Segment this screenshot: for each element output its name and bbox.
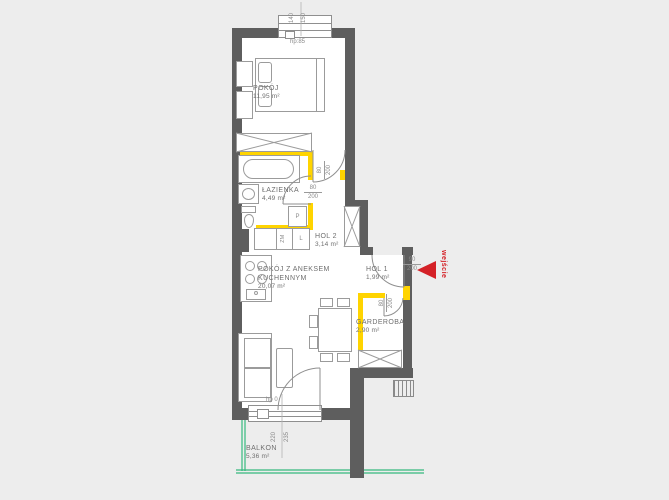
- dim-window-height: 150: [301, 9, 309, 27]
- room-name: GARDEROBA: [356, 318, 404, 327]
- room-area: 11,95 m²: [253, 93, 280, 101]
- room-name: POKÓJ: [253, 84, 280, 93]
- room-area: 1,99 m²: [366, 274, 389, 282]
- room-label-balkon: BALKON 5,36 m²: [246, 444, 277, 462]
- dim-value: 80: [310, 185, 317, 191]
- dim-bar: [324, 161, 325, 179]
- dim-bar: [386, 294, 387, 312]
- plan-overlay: [0, 0, 669, 500]
- dim-balcony-height: 235: [284, 428, 292, 446]
- dim-balcony-width: 220: [271, 428, 279, 446]
- dim-window-width: 140: [289, 9, 297, 27]
- dim-bedroom-door: 80 200: [317, 157, 333, 183]
- dim-value: 90: [409, 257, 416, 263]
- room-name: POKÓJ Z ANEKSEM: [258, 265, 330, 274]
- room-name: ŁAZIENKA: [262, 186, 299, 195]
- room-area: 2,90 m²: [356, 327, 404, 335]
- dim-value: 200: [388, 298, 394, 308]
- dim-bar: [304, 192, 322, 193]
- dim-garderoba-door: 80 200: [379, 290, 395, 316]
- room-label-lazienka: ŁAZIENKA 4,49 m²: [262, 186, 299, 204]
- room-label-salon: POKÓJ Z ANEKSEM KUCHENNYM 20,07 m²: [258, 265, 330, 292]
- dim-window-sill: hp:85: [290, 39, 305, 45]
- dimension-lines: [282, 2, 301, 458]
- room-label-hol1: HOL 1 1,99 m²: [366, 265, 389, 283]
- dim-value: 200: [308, 194, 318, 200]
- room-area: 5,36 m²: [246, 453, 277, 461]
- dim-entry-door: 90 200: [399, 257, 425, 272]
- room-label-hol2: HOL 2 3,14 m²: [315, 232, 338, 250]
- entrance-label: wejście: [440, 250, 447, 278]
- dim-balcony-sill: hp 0: [266, 397, 278, 403]
- dim-bathroom-door: 80 200: [302, 185, 324, 200]
- room-name: HOL 2: [315, 232, 338, 241]
- door-arc: [278, 368, 320, 410]
- room-label-pokoj: POKÓJ 11,95 m²: [253, 84, 280, 102]
- floor-plan: P ZM L: [0, 0, 669, 500]
- room-name: HOL 1: [366, 265, 389, 274]
- room-name: KUCHENNYM: [258, 274, 330, 283]
- room-area: 20,07 m²: [258, 283, 330, 291]
- dim-bar: [403, 264, 421, 265]
- room-area: 3,14 m²: [315, 241, 338, 249]
- dim-value: 80: [317, 167, 323, 174]
- dim-value: 200: [407, 266, 417, 272]
- dim-value: 80: [379, 300, 385, 307]
- room-area: 4,49 m²: [262, 195, 299, 203]
- dim-value: 200: [326, 165, 332, 175]
- room-label-garderoba: GARDEROBA 2,90 m²: [356, 318, 404, 336]
